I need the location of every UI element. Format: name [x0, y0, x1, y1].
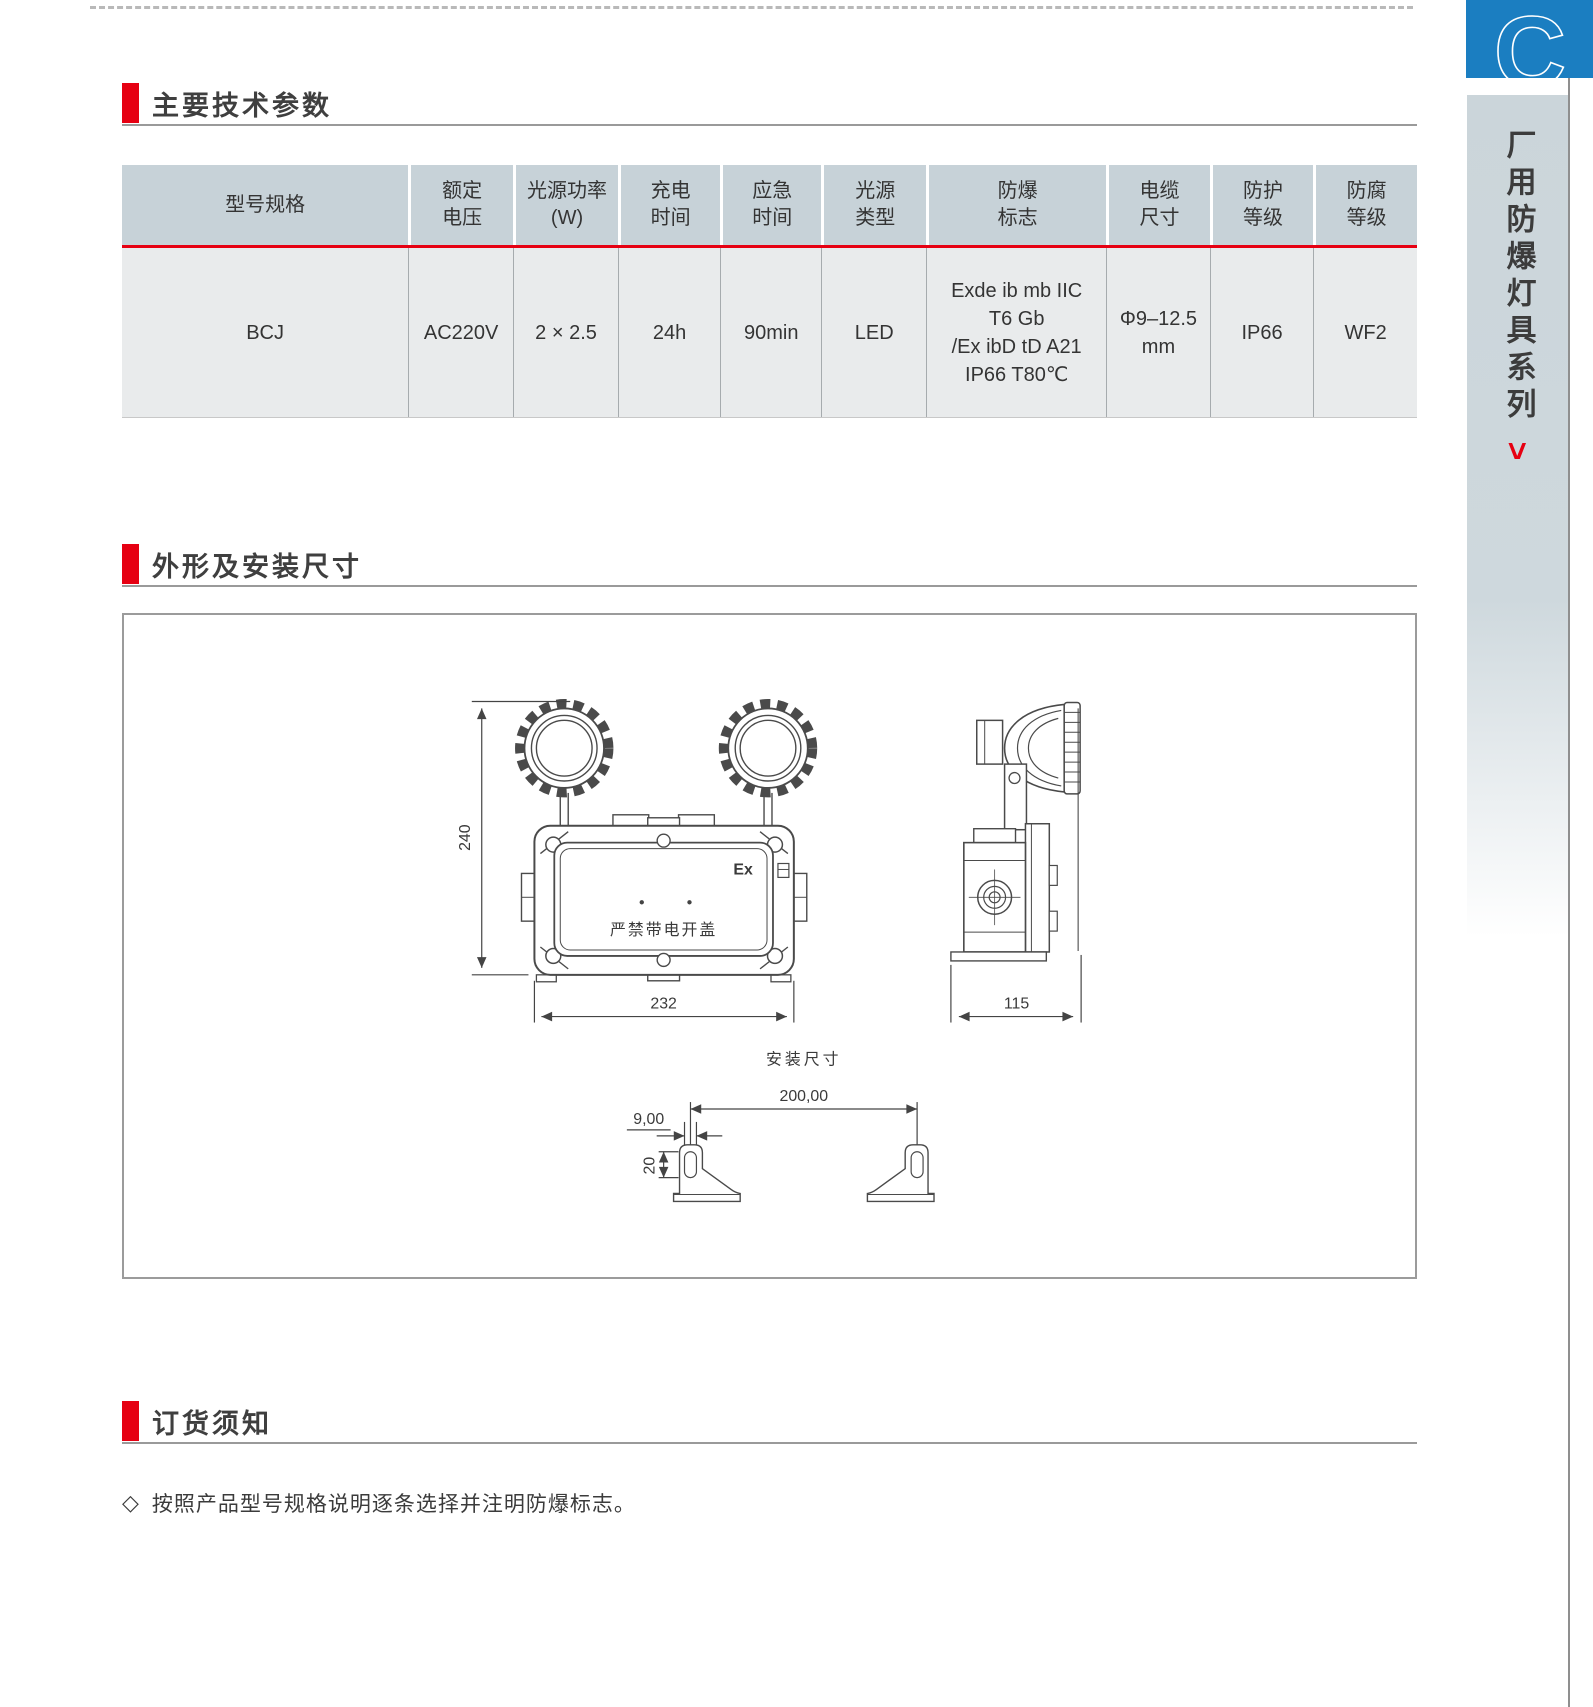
col-header-power: 光源功率(W) — [513, 165, 618, 245]
col-header-ex-mark: 防爆标志 — [926, 165, 1106, 245]
series-arrow-icon: > — [1502, 442, 1534, 461]
ex-mark-label: Ex — [733, 861, 753, 878]
dim-width-label: 232 — [650, 996, 677, 1013]
side-view-drawing: 115 — [951, 702, 1081, 1022]
cell-anticorrosion: WF2 — [1313, 248, 1417, 417]
spec-table-data-row: BCJ AC220V 2 × 2.5 24h 90min LED Exde ib… — [122, 248, 1417, 418]
chapter-letter: C — [1494, 0, 1566, 78]
spec-table: 型号规格 额定电压 光源功率(W) 充电时间 应急时间 光源类型 防爆标志 电缆… — [122, 165, 1417, 418]
cell-ex-mark: Exde ib mb IIC T6 Gb /Ex ibD tD A21 IP66… — [926, 248, 1106, 417]
cell-voltage: AC220V — [408, 248, 513, 417]
cell-ip-rating: IP66 — [1210, 248, 1314, 417]
front-view-drawing: Ex 严禁带电开盖 240 232 — [457, 701, 813, 1022]
dim-hole-spacing-label: 200,00 — [779, 1088, 828, 1105]
dim-slot-height-label: 20 — [642, 1157, 659, 1175]
section-title-ordering: 订货须知 — [152, 1402, 272, 1441]
warning-label: 严禁带电开盖 — [610, 921, 717, 939]
col-header-voltage: 额定电压 — [408, 165, 513, 245]
cell-model: BCJ — [122, 248, 408, 417]
col-header-model: 型号规格 — [122, 165, 408, 245]
col-header-source-type: 光源类型 — [821, 165, 926, 245]
dimension-drawing-panel: Ex 严禁带电开盖 240 232 — [122, 613, 1417, 1279]
series-title: 厂用防爆灯具系列 — [1496, 129, 1540, 425]
cell-source-type: LED — [821, 248, 926, 417]
ordering-note: ◇ 按照产品型号规格说明逐条选择并注明防爆标志。 — [122, 1488, 636, 1518]
col-header-charge-time: 充电时间 — [618, 165, 720, 245]
cell-charge-time: 24h — [618, 248, 720, 417]
section-title-tech-params: 主要技术参数 — [152, 84, 332, 123]
diamond-bullet-icon: ◇ — [122, 1490, 140, 1516]
cell-power: 2 × 2.5 — [513, 248, 618, 417]
catalog-page: 主要技术参数 型号规格 额定电压 光源功率(W) 充电时间 应急时间 光源类型 … — [0, 0, 1593, 1707]
dim-slot-width-label: 9,00 — [633, 1111, 664, 1128]
sidebar-vertical-rule — [1568, 78, 1570, 1707]
section-accent-bar — [122, 544, 139, 584]
section-title-outline: 外形及安装尺寸 — [152, 545, 362, 584]
mounting-bracket-left — [674, 1145, 741, 1202]
dim-depth-label: 115 — [1004, 996, 1029, 1013]
cell-emergency-time: 90min — [720, 248, 821, 417]
col-header-emergency-time: 应急时间 — [720, 165, 821, 245]
ordering-note-text: 按照产品型号规格说明逐条选择并注明防爆标志。 — [152, 1488, 636, 1518]
install-title: 安装尺寸 — [766, 1050, 842, 1068]
install-drawing: 安装尺寸 200,00 9,00 — [627, 1050, 934, 1201]
col-header-ip-rating: 防护等级 — [1210, 165, 1314, 245]
col-header-cable-size: 电缆尺寸 — [1106, 165, 1210, 245]
section-header-ordering: 订货须知 — [122, 1400, 1417, 1444]
series-sidebar: 厂用防爆灯具系列 > — [1467, 95, 1568, 1010]
cell-cable-size: Φ9–12.5 mm — [1106, 248, 1210, 417]
mounting-bracket-right — [867, 1145, 934, 1202]
section-header-outline: 外形及安装尺寸 — [122, 543, 1417, 587]
top-dashed-line — [90, 6, 1413, 9]
dimension-drawing-svg: Ex 严禁带电开盖 240 232 — [124, 615, 1415, 1277]
spec-table-header-row: 型号规格 额定电压 光源功率(W) 充电时间 应急时间 光源类型 防爆标志 电缆… — [122, 165, 1417, 245]
section-accent-bar — [122, 1401, 139, 1441]
chapter-letter-svg: C — [1466, 0, 1593, 78]
dim-height-label: 240 — [457, 824, 474, 851]
col-header-anticorrosion: 防腐等级 — [1313, 165, 1417, 245]
chapter-tab: C — [1466, 0, 1593, 78]
section-header-tech-params: 主要技术参数 — [122, 82, 1417, 126]
section-accent-bar — [122, 83, 139, 123]
